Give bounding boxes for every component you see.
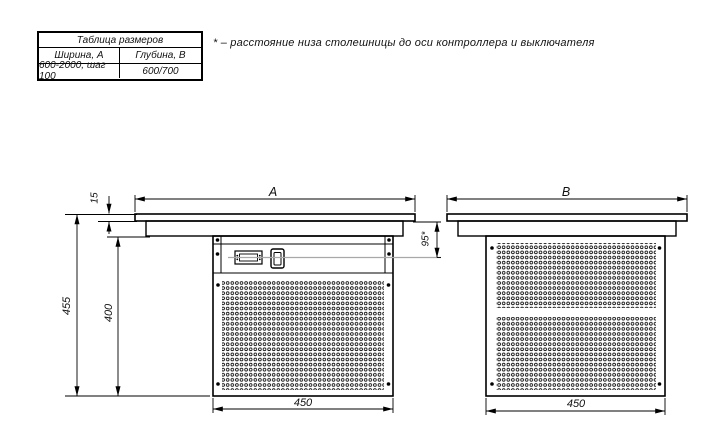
front-control-strip xyxy=(213,236,393,273)
dim-455 xyxy=(65,215,210,397)
footnote: * – расстояние низа столешницы до оси ко… xyxy=(213,37,595,49)
dim-450-front-label: 450 xyxy=(294,397,312,409)
front-vent-grille xyxy=(222,280,384,390)
size-table-col2-value: 600/700 xyxy=(120,64,201,78)
dim-95-label: 95* xyxy=(421,231,432,246)
drawing-canvas: Таблица размеров Ширина, А Глубина, В 60… xyxy=(0,0,720,447)
power-switch-icon xyxy=(271,249,284,268)
side-mounting-flange xyxy=(458,221,676,236)
side-view xyxy=(447,214,687,396)
size-table-col1-value: 600-2000, шаг 100 xyxy=(39,64,120,78)
dim-A-label: A xyxy=(269,185,277,199)
dim-455-label: 455 xyxy=(61,297,73,315)
size-table-col2-header: Глубина, В xyxy=(120,48,201,63)
side-vent-grille-lower xyxy=(496,317,656,390)
front-view xyxy=(135,214,415,396)
side-countertop xyxy=(447,214,687,221)
dim-B-label: B xyxy=(562,185,570,199)
side-vent-grille-upper xyxy=(496,243,656,308)
dim-450-side-label: 450 xyxy=(567,398,585,410)
dim-15-label: 15 xyxy=(90,192,101,203)
dim-400-label: 400 xyxy=(103,304,115,322)
dim-15 xyxy=(98,196,137,234)
size-table: Таблица размеров Ширина, А Глубина, В 60… xyxy=(37,31,203,81)
front-countertop xyxy=(135,214,415,221)
front-mounting-flange xyxy=(146,221,403,236)
size-table-title: Таблица размеров xyxy=(39,33,201,48)
